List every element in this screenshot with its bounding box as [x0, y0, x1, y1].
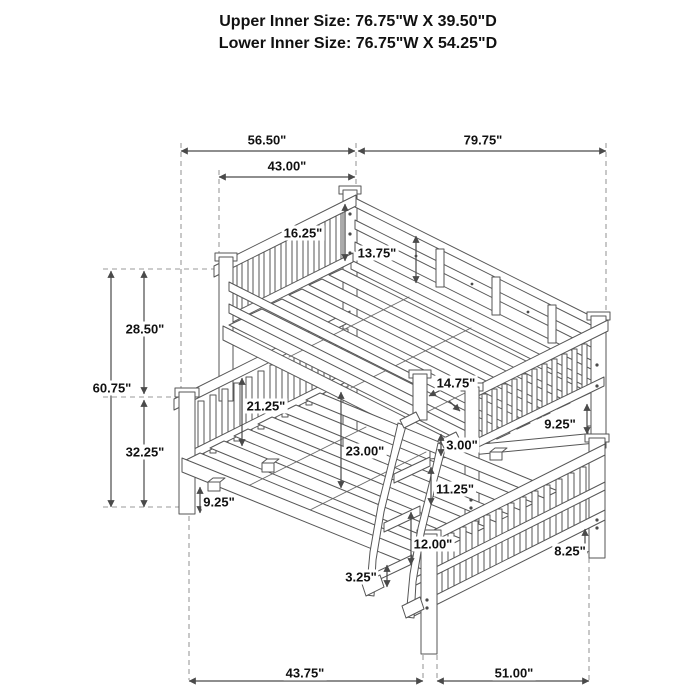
dim-label-79-75: 79.75" [462, 133, 505, 148]
dim-label-3-00: 3.00" [444, 438, 479, 453]
dim-label-9-25-right: 9.25" [542, 417, 577, 432]
dim-label-51-00: 51.00" [493, 666, 536, 681]
lower-inner-size-title: Lower Inner Size: 76.75"W X 54.25"D [219, 35, 497, 53]
dim-label-60-75: 60.75" [91, 381, 134, 396]
dim-label-13-75: 13.75" [356, 246, 399, 261]
dim-label-32-25: 32.25" [124, 445, 167, 460]
dim-label-3-25: 3.25" [343, 570, 378, 585]
dim-label-21-25: 21.25" [245, 399, 288, 414]
bunk-bed-line-drawing [0, 0, 700, 700]
dim-label-43-00: 43.00" [266, 159, 309, 174]
dim-label-11-25: 11.25" [434, 482, 476, 497]
dim-label-23-00: 23.00" [344, 444, 387, 459]
dim-label-28-50: 28.50" [124, 322, 167, 337]
dim-label-16-25: 16.25" [282, 226, 325, 241]
dim-label-14-75: 14.75" [435, 376, 478, 391]
dim-label-43-75: 43.75" [284, 666, 327, 681]
dim-label-9-25-left: 9.25" [201, 495, 236, 510]
upper-inner-size-title: Upper Inner Size: 76.75"W X 39.50"D [219, 13, 497, 31]
dim-label-56-50: 56.50" [246, 133, 289, 148]
dim-label-12-00: 12.00" [412, 537, 455, 552]
bunk-bed-dimension-diagram: Upper Inner Size: 76.75"W X 39.50"D Lowe… [0, 0, 700, 700]
dim-label-8-25: 8.25" [552, 544, 587, 559]
